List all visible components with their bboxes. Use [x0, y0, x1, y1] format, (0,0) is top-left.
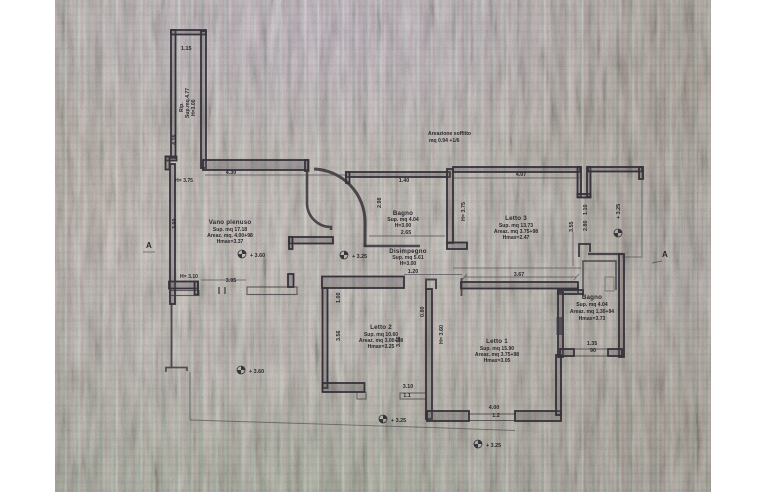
svg-text:H=3.00: H=3.00: [191, 99, 197, 116]
svg-text:Areazione soffitto: Areazione soffitto: [428, 131, 471, 137]
svg-text:3.56: 3.56: [396, 337, 402, 348]
svg-text:2.98: 2.98: [377, 198, 383, 209]
svg-text:4.15: 4.15: [172, 135, 178, 146]
svg-text:+ 3.25: + 3.25: [352, 254, 367, 260]
svg-text:1.15: 1.15: [181, 46, 192, 52]
svg-text:H= 3.75: H= 3.75: [461, 202, 467, 221]
svg-text:A: A: [662, 250, 668, 259]
svg-text:1.35: 1.35: [587, 341, 598, 347]
svg-text:2.65: 2.65: [401, 230, 412, 236]
svg-text:H= 3.75: H= 3.75: [175, 178, 193, 184]
svg-text:3.56: 3.56: [336, 331, 342, 342]
svg-text:1.20: 1.20: [408, 269, 419, 275]
svg-text:4.07: 4.07: [516, 172, 527, 178]
svg-text:Hmax=3.73: Hmax=3.73: [579, 316, 606, 322]
svg-text:+ 3.25: + 3.25: [391, 418, 406, 424]
svg-text:+ 3.60: + 3.60: [249, 369, 264, 375]
svg-text:Hmax=3.37: Hmax=3.37: [217, 239, 244, 245]
svg-text:H=3.00: H=3.00: [400, 261, 417, 267]
svg-text:3.10: 3.10: [403, 384, 414, 390]
svg-text:+ 3.25: + 3.25: [616, 204, 622, 219]
svg-text:4.00: 4.00: [489, 405, 500, 411]
svg-text:90: 90: [590, 348, 596, 354]
svg-text:4.30: 4.30: [226, 170, 237, 176]
svg-text:1.40: 1.40: [399, 178, 410, 184]
svg-text:Disimpegno: Disimpegno: [389, 248, 426, 255]
svg-text:3.90: 3.90: [172, 219, 178, 230]
svg-text:Vano plenuso: Vano plenuso: [209, 219, 252, 226]
svg-text:Bagno: Bagno: [582, 294, 602, 301]
svg-text:3.95: 3.95: [226, 278, 237, 284]
svg-text:Letto 2: Letto 2: [370, 324, 392, 331]
svg-text:3.67: 3.67: [514, 272, 525, 278]
svg-text:Sup. mq 4.04: Sup. mq 4.04: [576, 302, 608, 308]
svg-text:+ 3.60: + 3.60: [250, 253, 265, 259]
svg-text:3.55: 3.55: [569, 222, 575, 233]
svg-text:mq 0.94 +1/6: mq 0.94 +1/6: [429, 138, 460, 144]
svg-text:1.00: 1.00: [336, 293, 342, 304]
svg-text:Letto 3: Letto 3: [505, 215, 527, 222]
svg-text:H=3.00: H=3.00: [395, 223, 412, 229]
svg-text:Hmax=3.05: Hmax=3.05: [484, 358, 511, 364]
svg-text:1.10: 1.10: [583, 205, 589, 216]
svg-text:H= 3.10: H= 3.10: [180, 274, 198, 280]
svg-text:1.1: 1.1: [403, 393, 411, 399]
svg-text:1.2: 1.2: [492, 413, 500, 419]
svg-text:+ 3.25: + 3.25: [486, 443, 501, 449]
svg-text:Bagno: Bagno: [393, 210, 413, 217]
svg-text:0.80: 0.80: [420, 307, 426, 318]
svg-text:A: A: [146, 241, 152, 250]
svg-text:Areaz. mq 1.30+94: Areaz. mq 1.30+94: [570, 309, 614, 315]
svg-text:2.80: 2.80: [583, 221, 589, 232]
svg-text:Hmax=2.47: Hmax=2.47: [503, 235, 530, 241]
svg-text:H= 3.60: H= 3.60: [439, 325, 445, 344]
svg-text:Letto 1: Letto 1: [486, 338, 508, 345]
svg-text:Hmax=3.25: Hmax=3.25: [368, 344, 395, 350]
